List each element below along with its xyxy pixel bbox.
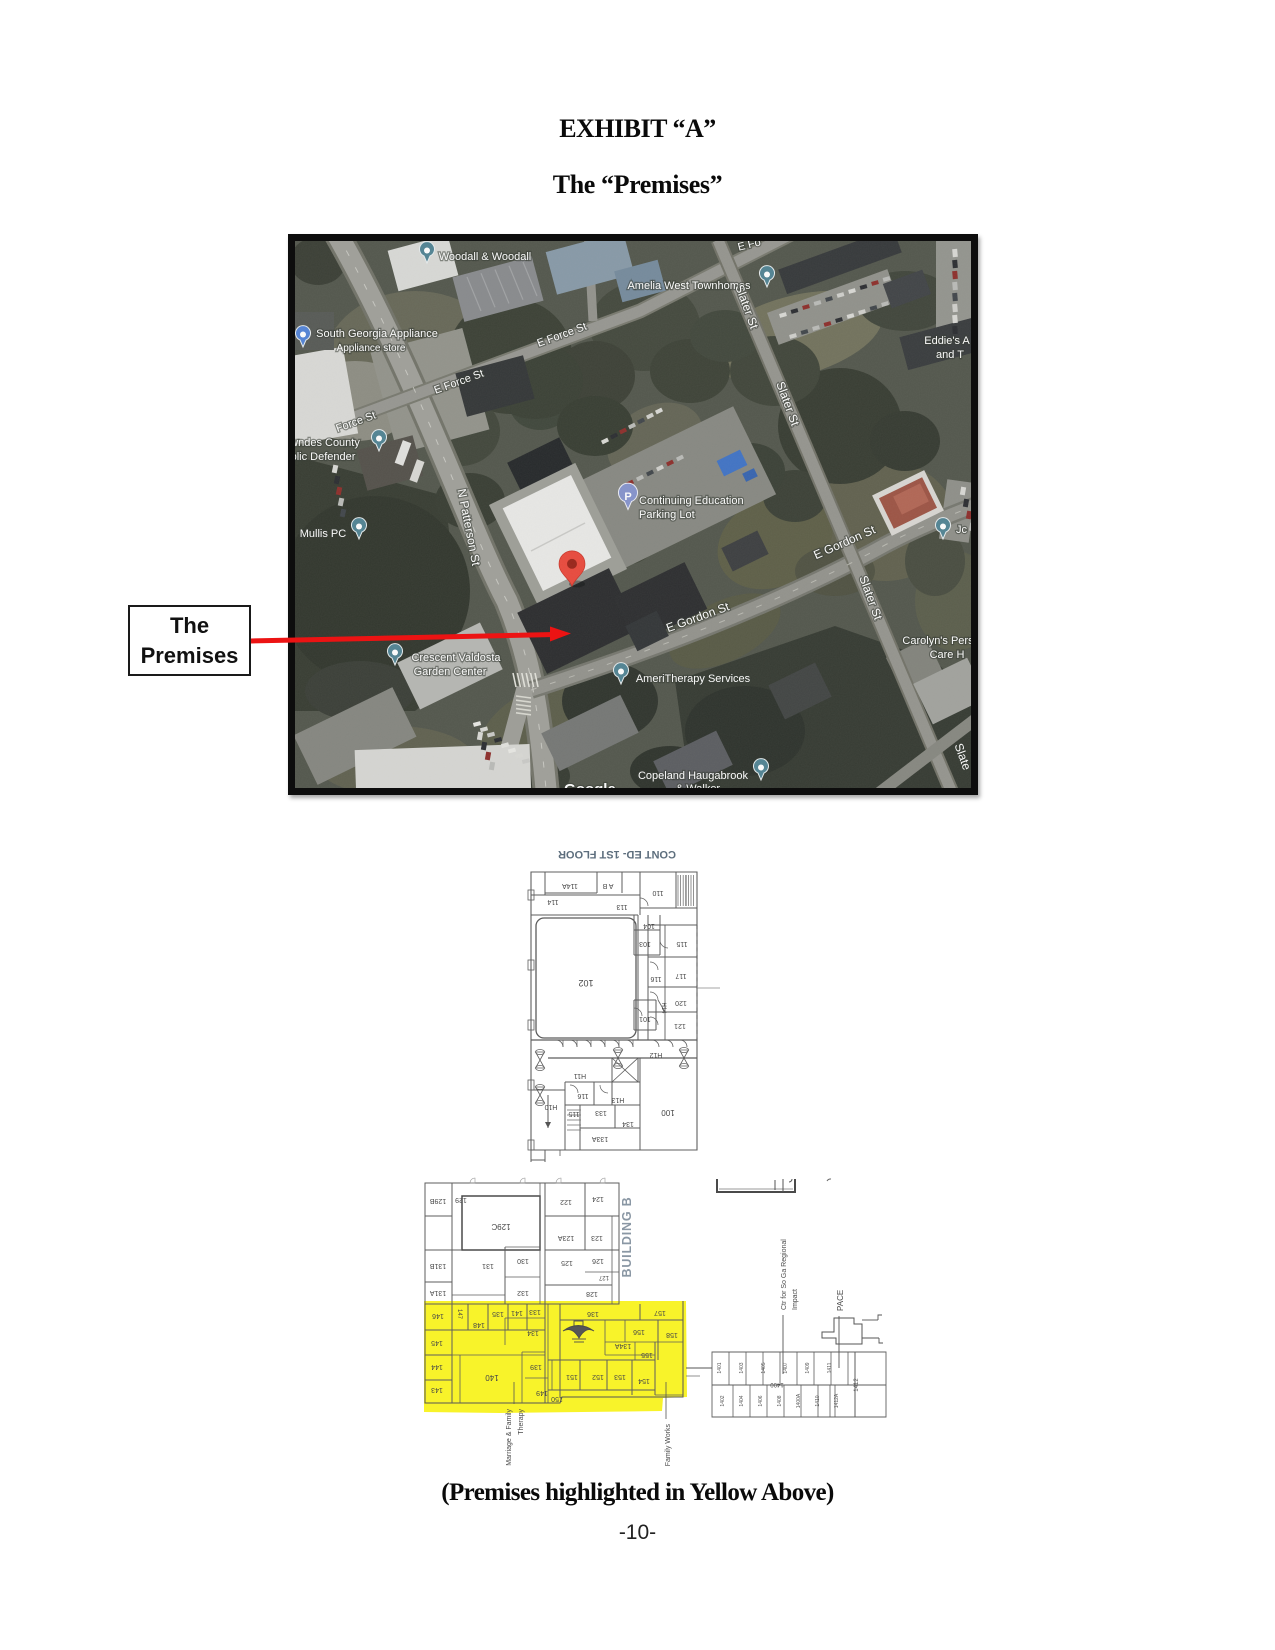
svg-text:135: 135 (492, 1310, 504, 1317)
svg-text:134: 134 (622, 1120, 634, 1127)
svg-text:144: 144 (431, 1363, 443, 1370)
svg-text:143: 143 (431, 1386, 443, 1393)
svg-text:139: 139 (530, 1363, 542, 1370)
svg-text:101: 101 (639, 1015, 651, 1022)
svg-text:155: 155 (641, 1351, 653, 1358)
svg-text:1412: 1412 (854, 1378, 860, 1392)
svg-text:126: 126 (592, 1257, 604, 1264)
svg-text:136: 136 (587, 1310, 599, 1317)
svg-text:125: 125 (561, 1259, 573, 1266)
svg-text:1403: 1403 (739, 1362, 745, 1373)
svg-text:150: 150 (551, 1395, 563, 1402)
svg-text:116: 116 (650, 975, 661, 982)
svg-text:158: 158 (666, 1331, 678, 1338)
svg-text:122: 122 (560, 1198, 572, 1205)
svg-text:116: 116 (577, 1092, 588, 1099)
svg-text:115: 115 (568, 1110, 579, 1117)
svg-text:152: 152 (592, 1373, 604, 1380)
svg-text:131: 131 (482, 1262, 494, 1269)
svg-text:Therapy: Therapy (518, 1409, 525, 1435)
svg-text:128: 128 (586, 1290, 598, 1297)
svg-text:130: 130 (517, 1257, 529, 1264)
svg-text:149: 149 (536, 1389, 548, 1396)
svg-text:134: 134 (527, 1329, 539, 1336)
svg-text:141: 141 (511, 1309, 523, 1316)
svg-text:121: 121 (674, 1022, 686, 1029)
svg-text:103: 103 (639, 940, 651, 947)
svg-text:Marriage & Family: Marriage & Family (506, 1409, 513, 1466)
svg-text:1408: 1408 (777, 1395, 783, 1406)
svg-text:124: 124 (592, 1195, 604, 1202)
svg-text:1411: 1411 (827, 1362, 833, 1373)
svg-text:1406: 1406 (758, 1395, 764, 1406)
svg-text:Family Works: Family Works (665, 1424, 672, 1467)
svg-text:1400: 1400 (770, 1381, 784, 1387)
svg-text:1412A: 1412A (834, 1393, 840, 1408)
svg-text:102: 102 (578, 978, 593, 988)
svg-text:1401: 1401 (717, 1362, 723, 1373)
svg-text:154: 154 (638, 1377, 650, 1384)
svg-text:1410: 1410 (815, 1395, 821, 1406)
svg-text:H13: H13 (611, 1096, 624, 1103)
svg-text:129B: 129B (430, 1197, 447, 1204)
svg-text:Impact: Impact (792, 1289, 799, 1310)
svg-text:114: 114 (547, 898, 558, 905)
svg-text:1405: 1405 (761, 1362, 767, 1373)
svg-text:H10: H10 (544, 1103, 557, 1110)
svg-text:129C: 129C (491, 1222, 510, 1231)
svg-text:A B: A B (602, 882, 613, 889)
svg-text:131A: 131A (430, 1289, 447, 1296)
svg-text:123A: 123A (558, 1234, 575, 1241)
svg-text:1409: 1409 (805, 1362, 811, 1373)
svg-text:133: 133 (529, 1308, 541, 1315)
svg-text:117: 117 (675, 972, 686, 979)
svg-text:1407: 1407 (783, 1362, 789, 1373)
svg-text:153: 153 (614, 1373, 626, 1380)
svg-text:1400A: 1400A (796, 1393, 802, 1408)
svg-text:Ctr for So Ga Regional: Ctr for So Ga Regional (781, 1239, 788, 1310)
svg-text:120: 120 (675, 999, 687, 1006)
svg-text:H11: H11 (574, 1072, 586, 1079)
svg-text:132: 132 (517, 1289, 529, 1296)
svg-text:131B: 131B (430, 1262, 447, 1269)
svg-text:151: 151 (566, 1373, 578, 1380)
svg-text:104: 104 (643, 922, 655, 929)
svg-text:115: 115 (676, 940, 687, 947)
svg-text:157: 157 (654, 1309, 666, 1316)
svg-text:156: 156 (633, 1328, 645, 1335)
svg-text:H12: H12 (649, 1051, 662, 1058)
svg-text:110: 110 (652, 889, 663, 896)
svg-text:140: 140 (485, 1373, 499, 1382)
svg-text:114A: 114A (562, 882, 578, 889)
svg-text:133A: 133A (592, 1135, 609, 1142)
svg-text:BUILDING B: BUILDING B (620, 1197, 634, 1278)
svg-text:127: 127 (598, 1274, 609, 1280)
svg-text:PACE: PACE (836, 1290, 845, 1311)
svg-text:146: 146 (432, 1312, 444, 1319)
svg-text:129: 129 (455, 1196, 467, 1203)
svg-text:CONT ED- 1ST FLOOR: CONT ED- 1ST FLOOR (558, 848, 676, 860)
svg-text:H14: H14 (660, 1002, 666, 1014)
svg-text:133: 133 (595, 1109, 607, 1116)
svg-text:147: 147 (456, 1309, 462, 1320)
svg-text:148: 148 (473, 1321, 485, 1328)
svg-text:123: 123 (591, 1234, 603, 1241)
svg-text:134A: 134A (615, 1342, 632, 1349)
svg-text:1402: 1402 (720, 1395, 726, 1406)
svg-text:113: 113 (616, 903, 627, 910)
svg-text:145: 145 (431, 1339, 443, 1346)
svg-text:100: 100 (661, 1108, 675, 1117)
svg-text:1404: 1404 (739, 1395, 745, 1406)
